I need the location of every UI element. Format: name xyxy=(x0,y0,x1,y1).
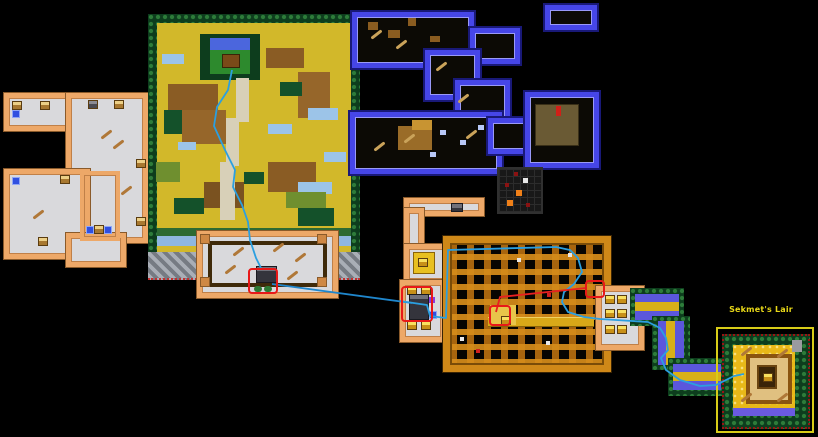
west-dungeon-map xyxy=(4,93,150,261)
chest-icon xyxy=(60,175,70,184)
highlight-maze-chest xyxy=(489,305,511,326)
highlight-annex-gate xyxy=(401,286,433,322)
chest-icon xyxy=(421,321,431,330)
chest-icon xyxy=(88,100,98,109)
lair-highlight-box xyxy=(716,327,814,433)
chest-icon xyxy=(94,225,104,234)
chest-icon xyxy=(114,100,124,109)
sekmets-lair-map xyxy=(722,334,810,429)
gem-icon xyxy=(86,226,94,234)
chest-icon xyxy=(605,325,615,334)
water-patch xyxy=(324,152,346,162)
red-dot xyxy=(476,349,480,353)
flag-icon xyxy=(556,106,561,116)
corner-ornament xyxy=(317,277,327,287)
gem-icon xyxy=(12,177,20,185)
chest-icon xyxy=(617,295,627,304)
rock-ledge xyxy=(148,252,200,280)
red-dot xyxy=(526,203,530,207)
chest-icon xyxy=(605,295,615,304)
white-tile xyxy=(517,258,521,262)
corner-ornament xyxy=(200,234,210,244)
white-tile xyxy=(568,253,572,257)
orange-tile xyxy=(507,200,513,206)
dirt-patch xyxy=(266,48,304,68)
dirt-tile xyxy=(408,18,416,26)
corner-ornament xyxy=(200,277,210,287)
tree-clump xyxy=(174,198,204,214)
water-patch xyxy=(178,142,196,150)
dirt-patch xyxy=(168,84,218,110)
doorway xyxy=(451,203,463,212)
northeast-dungeon-map xyxy=(345,5,593,173)
scrub-patch xyxy=(156,162,180,182)
gem-icon xyxy=(104,226,112,234)
chest-icon xyxy=(40,101,50,110)
shrine-structure xyxy=(222,54,240,68)
world-map-canvas: Sekmet's Lair xyxy=(0,0,818,437)
chest-icon xyxy=(605,309,615,318)
white-tile xyxy=(460,337,464,341)
dungeon-room xyxy=(545,5,597,30)
gold-maze-dungeon-map xyxy=(443,236,611,372)
orange-tile xyxy=(516,190,522,196)
chest-icon xyxy=(763,373,773,382)
puzzle-room-map xyxy=(497,167,543,214)
dirt-tile xyxy=(412,120,432,130)
dirt-tile xyxy=(430,36,440,42)
tree-clump xyxy=(164,110,182,134)
ice-tile xyxy=(440,130,446,135)
chest-icon xyxy=(12,101,22,110)
chest-icon xyxy=(136,159,146,168)
overworld-map xyxy=(148,14,360,262)
white-tile xyxy=(546,341,550,345)
chest-icon xyxy=(136,217,146,226)
trail-patch xyxy=(220,162,235,220)
chest-icon xyxy=(617,325,627,334)
highlight-maze-exit xyxy=(585,280,605,298)
shrine-water xyxy=(210,38,250,50)
trail-patch xyxy=(226,118,239,166)
ice-tile xyxy=(430,152,436,157)
corner-ornament xyxy=(317,234,327,244)
gem-icon xyxy=(12,110,20,118)
tree-clump xyxy=(244,172,264,184)
chest-icon xyxy=(407,321,417,330)
white-tile xyxy=(523,178,528,183)
red-dot xyxy=(547,293,551,297)
rock-tile xyxy=(792,340,802,352)
water-patch xyxy=(162,54,184,64)
dirt-patch xyxy=(182,110,226,144)
chest-icon xyxy=(418,258,428,267)
chest-icon xyxy=(38,237,48,246)
highlight-hall-gate xyxy=(248,268,278,294)
lair-center xyxy=(757,365,777,389)
chest-room xyxy=(404,244,448,284)
scrub-patch xyxy=(286,192,326,208)
tree-clump xyxy=(280,82,302,96)
red-dot xyxy=(505,183,509,187)
path-water-road xyxy=(673,364,721,390)
dirt-tile xyxy=(388,30,400,38)
red-dot xyxy=(514,172,518,176)
water-patch xyxy=(268,124,292,134)
lair-label: Sekmet's Lair xyxy=(706,305,816,314)
chest-icon xyxy=(617,309,627,318)
water-patch xyxy=(308,108,338,120)
ice-tile xyxy=(460,140,466,145)
ice-tile xyxy=(478,125,484,130)
lair-water-edge xyxy=(733,408,795,416)
dirt-tile xyxy=(368,22,378,30)
tree-clump xyxy=(298,208,334,226)
trail-patch xyxy=(236,78,249,122)
